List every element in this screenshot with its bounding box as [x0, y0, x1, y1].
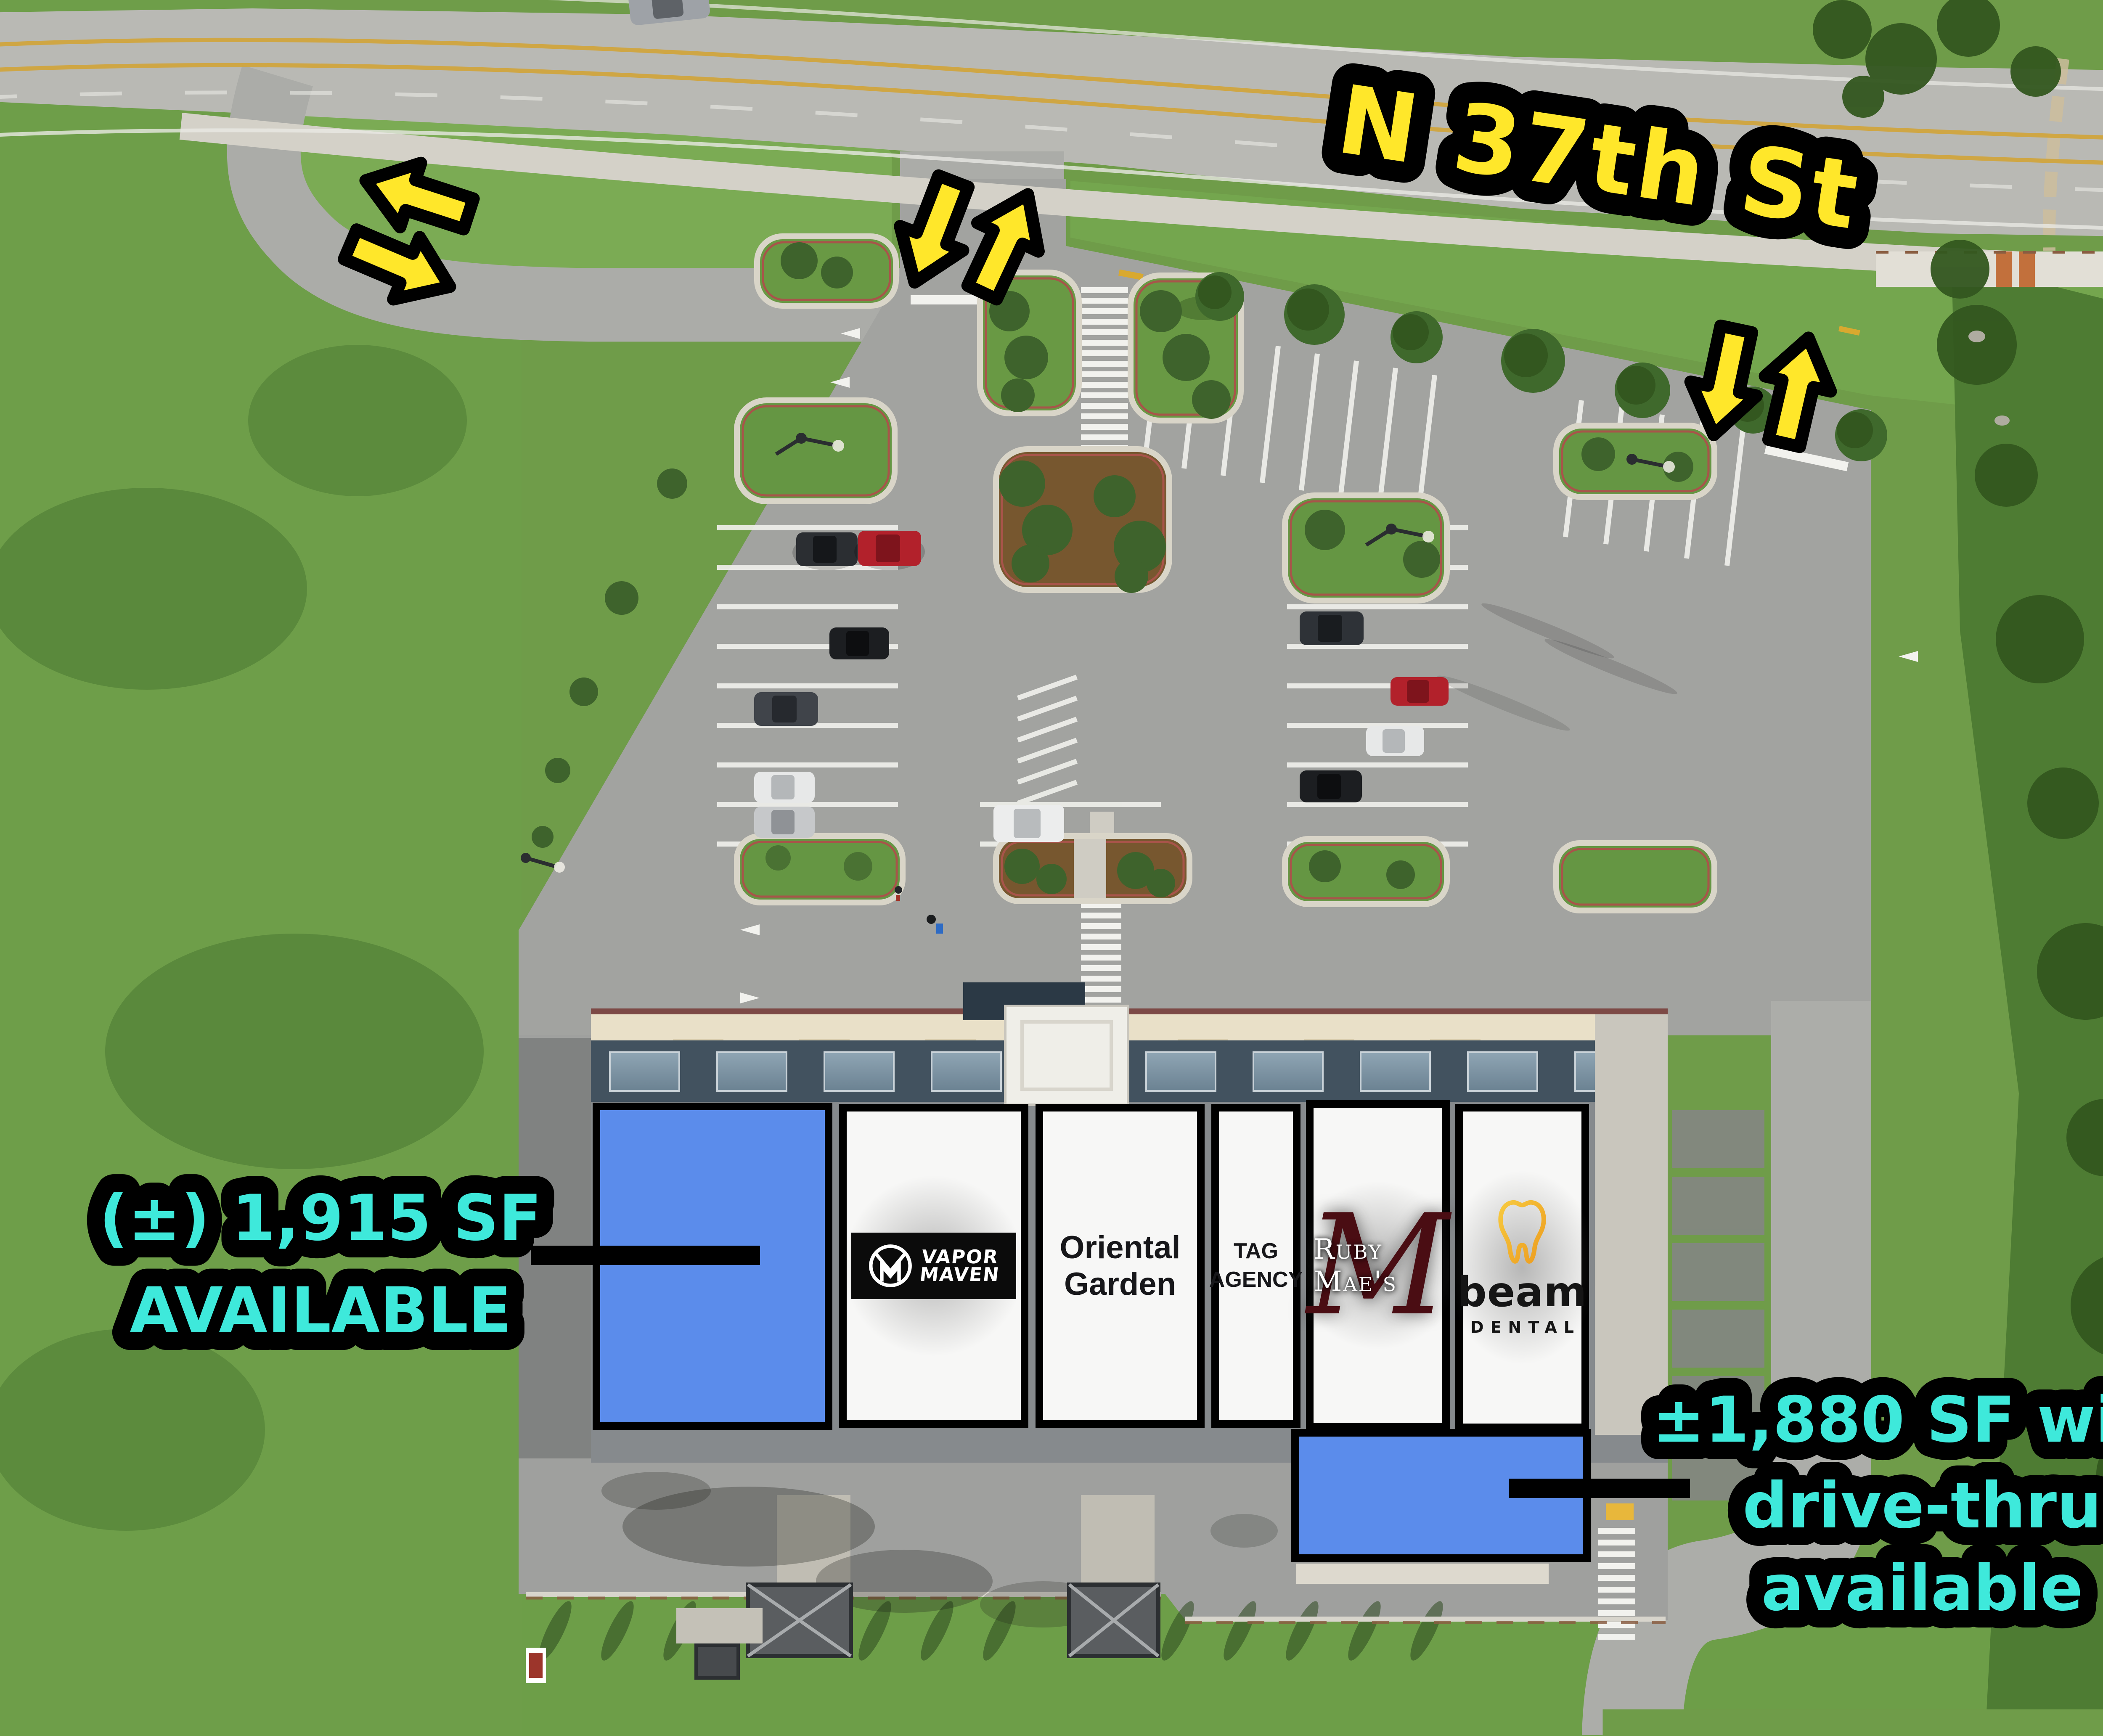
- availability-left-line1: (±) 1,915 SF: [99, 1182, 542, 1255]
- availability-right-line1: ±1,880 SF with: [1652, 1384, 2103, 1457]
- availability-right-line3: available: [1761, 1552, 2083, 1625]
- leader-line-right: [1509, 1479, 1690, 1498]
- annotation-layer: N 37th St (±) 1,915 SF AVAILABLE ±1,880 …: [0, 0, 2103, 1736]
- yellow-arrow-east-entry-in: [1681, 322, 1769, 442]
- street-name-label: N 37th St: [1331, 65, 1867, 251]
- availability-right-line2: drive-thru: [1743, 1469, 2102, 1543]
- leader-line-left: [531, 1246, 760, 1265]
- aerial-site-photo: VAPORMAVEN OrientalGarden TAGAGENCY M Ru…: [0, 0, 2103, 1736]
- yellow-arrow-east-entry-out: [1751, 330, 1841, 450]
- availability-label-right: ±1,880 SF with drive-thru available: [1652, 1384, 2103, 1625]
- availability-label-left: (±) 1,915 SF AVAILABLE: [99, 1182, 542, 1347]
- availability-left-line2: AVAILABLE: [130, 1274, 511, 1347]
